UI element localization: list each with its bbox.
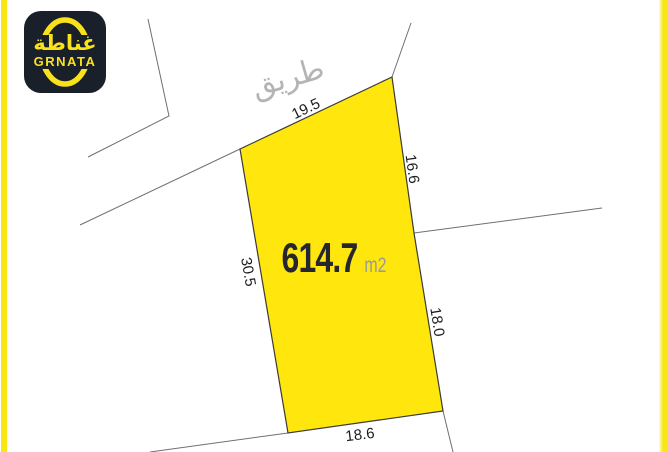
boundary-line-bottom-right — [443, 411, 453, 452]
plot-map-canvas: غناطة GRNATA طريق 19.5 16.6 30.5 18.0 18… — [0, 0, 668, 452]
plot-area-unit: m2 — [364, 254, 386, 278]
boundary-line-bottom-left — [150, 433, 288, 452]
logo-latin-wordmark: GRNATA — [24, 55, 106, 69]
road-boundary-line-left — [80, 149, 240, 225]
dimension-bottom-edge: 18.6 — [344, 425, 375, 445]
plot-area-value: 614.7 — [281, 234, 357, 282]
grnata-logo[interactable]: غناطة GRNATA — [24, 11, 106, 93]
boundary-line-top-right — [392, 23, 411, 77]
plot-area-label: 614.7 m2 — [281, 234, 386, 282]
logo-arabic-wordmark: غناطة — [24, 33, 106, 55]
boundary-line-mid-right — [414, 208, 602, 233]
